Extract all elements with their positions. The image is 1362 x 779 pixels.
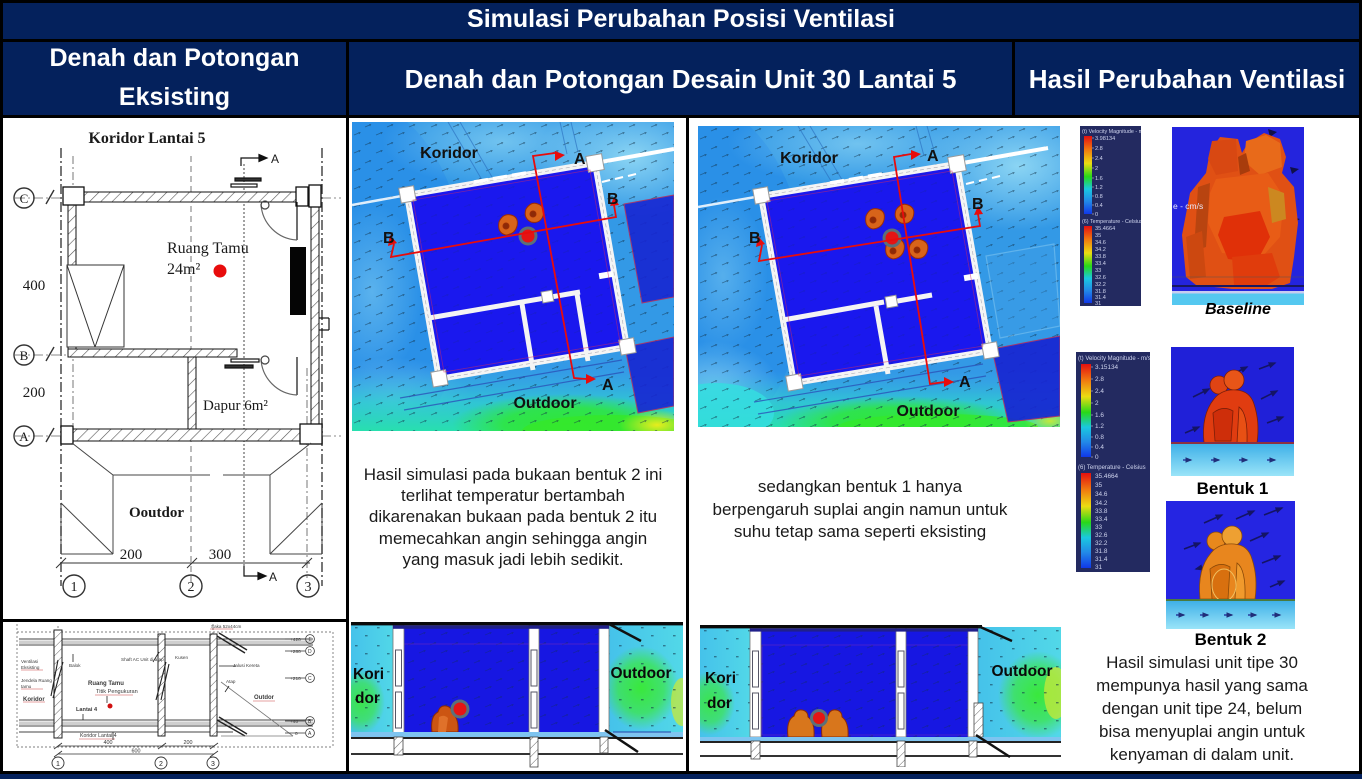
svg-text:Dapur 6m²: Dapur 6m² bbox=[203, 398, 268, 414]
svg-text:+40: +40 bbox=[290, 719, 298, 725]
svg-text:33.8: 33.8 bbox=[1095, 508, 1108, 515]
svg-text:35: 35 bbox=[1095, 482, 1103, 489]
svg-text:Koridor: Koridor bbox=[420, 145, 478, 162]
svg-text:B: B bbox=[383, 230, 395, 247]
svg-text:2: 2 bbox=[159, 761, 163, 768]
svg-text:200: 200 bbox=[23, 385, 46, 401]
svg-text:(6) Temperature - Celsius: (6) Temperature - Celsius bbox=[1078, 465, 1146, 471]
svg-text:0: 0 bbox=[295, 731, 298, 737]
svg-text:2.8: 2.8 bbox=[1095, 376, 1104, 383]
svg-text:400: 400 bbox=[23, 278, 46, 294]
svg-text:31.4: 31.4 bbox=[1095, 556, 1108, 563]
svg-text:A: A bbox=[927, 148, 939, 165]
svg-text:Kori: Kori bbox=[705, 670, 736, 687]
svg-text:B: B bbox=[749, 230, 761, 247]
svg-text:B: B bbox=[972, 196, 984, 213]
svg-text:Lantai 4: Lantai 4 bbox=[76, 707, 98, 713]
svg-text:33.8: 33.8 bbox=[1095, 254, 1106, 260]
svg-text:31.8: 31.8 bbox=[1095, 548, 1108, 555]
svg-text:A: A bbox=[271, 152, 279, 166]
svg-text:2.8: 2.8 bbox=[1095, 146, 1103, 152]
svg-text:tamu: tamu bbox=[21, 684, 32, 689]
svg-text:34.6: 34.6 bbox=[1095, 491, 1108, 498]
svg-text:1.6: 1.6 bbox=[1095, 412, 1104, 419]
svg-text:dor: dor bbox=[707, 695, 732, 712]
svg-text:Ruang Tamu: Ruang Tamu bbox=[167, 240, 249, 257]
svg-text:0.8: 0.8 bbox=[1095, 434, 1104, 441]
svg-text:Ruang Tamu: Ruang Tamu bbox=[88, 681, 124, 687]
svg-text:35.4664: 35.4664 bbox=[1095, 473, 1119, 480]
svg-text:34.2: 34.2 bbox=[1095, 500, 1108, 507]
svg-text:Kori: Kori bbox=[353, 666, 384, 683]
svg-text:dor: dor bbox=[355, 690, 380, 707]
svg-text:Titik Pengukuran: Titik Pengukuran bbox=[96, 689, 138, 695]
svg-text:32.2: 32.2 bbox=[1095, 540, 1108, 547]
svg-text:32.6: 32.6 bbox=[1095, 275, 1106, 281]
svg-text:Shaft AC Unit di atap: Shaft AC Unit di atap bbox=[121, 657, 164, 662]
svg-text:Koridor: Koridor bbox=[780, 150, 838, 167]
svg-text:3: 3 bbox=[305, 580, 312, 595]
svg-text:e - cm/s: e - cm/s bbox=[1173, 201, 1203, 211]
svg-text:Koridor Lantai 4: Koridor Lantai 4 bbox=[80, 733, 117, 739]
svg-text:33.4: 33.4 bbox=[1095, 516, 1108, 523]
svg-text:32.6: 32.6 bbox=[1095, 532, 1108, 539]
svg-text:Ooutdor: Ooutdor bbox=[129, 505, 184, 521]
svg-text:2.4: 2.4 bbox=[1095, 388, 1104, 395]
svg-text:3.15134: 3.15134 bbox=[1095, 364, 1119, 371]
svg-text:0.4: 0.4 bbox=[1095, 444, 1104, 451]
svg-text:0.8: 0.8 bbox=[1095, 194, 1103, 200]
svg-text:2: 2 bbox=[1095, 400, 1099, 407]
svg-text:B: B bbox=[607, 191, 619, 208]
svg-text:(t) Velocity Magnitude - m/s: (t) Velocity Magnitude - m/s bbox=[1082, 129, 1141, 135]
svg-text:2.4: 2.4 bbox=[1095, 156, 1103, 162]
svg-text:35.4664: 35.4664 bbox=[1095, 226, 1115, 232]
svg-text:C: C bbox=[20, 191, 29, 206]
svg-text:Eksisting: Eksisting bbox=[21, 665, 40, 670]
svg-text:+210: +210 bbox=[290, 676, 301, 682]
svg-text:34.6: 34.6 bbox=[1095, 240, 1106, 246]
svg-text:33: 33 bbox=[1095, 268, 1101, 274]
svg-text:Koridor Lantai 5: Koridor Lantai 5 bbox=[88, 130, 205, 147]
svg-text:0.4: 0.4 bbox=[1095, 203, 1103, 209]
svg-text:Outdoor: Outdoor bbox=[610, 665, 671, 682]
svg-text:32.2: 32.2 bbox=[1095, 282, 1106, 288]
svg-text:Balok: Balok bbox=[69, 663, 81, 668]
svg-text:34.2: 34.2 bbox=[1095, 247, 1106, 253]
svg-text:35: 35 bbox=[1095, 233, 1101, 239]
svg-text:33.4: 33.4 bbox=[1095, 261, 1106, 267]
svg-text:A: A bbox=[269, 570, 277, 584]
svg-text:200: 200 bbox=[120, 547, 143, 563]
svg-text:24m²: 24m² bbox=[167, 261, 200, 278]
svg-text:Saka 52x44cm: Saka 52x44cm bbox=[211, 624, 242, 629]
svg-text:Outdoor: Outdoor bbox=[513, 395, 576, 412]
svg-text:C: C bbox=[308, 676, 312, 682]
svg-text:Outdor: Outdor bbox=[254, 695, 275, 701]
svg-text:Outdoor: Outdoor bbox=[896, 403, 959, 420]
svg-text:A: A bbox=[19, 429, 29, 444]
svg-text:1: 1 bbox=[71, 580, 78, 595]
svg-text:Jendela Ruang: Jendela Ruang bbox=[21, 678, 52, 683]
svg-text:D: D bbox=[308, 649, 312, 655]
svg-text:3: 3 bbox=[211, 761, 215, 768]
svg-text:600: 600 bbox=[132, 749, 141, 755]
svg-text:31: 31 bbox=[1095, 564, 1103, 571]
svg-text:2: 2 bbox=[188, 580, 195, 595]
svg-text:+280: +280 bbox=[290, 649, 301, 655]
svg-text:1.2: 1.2 bbox=[1095, 423, 1104, 430]
svg-text:A: A bbox=[574, 151, 586, 168]
svg-text:Ventilasi: Ventilasi bbox=[21, 659, 38, 664]
svg-text:+420: +420 bbox=[290, 637, 301, 643]
svg-text:0: 0 bbox=[1095, 212, 1098, 218]
svg-text:0: 0 bbox=[1095, 454, 1099, 461]
svg-text:2: 2 bbox=[1095, 166, 1098, 172]
svg-text:31: 31 bbox=[1095, 301, 1101, 306]
svg-text:A: A bbox=[959, 374, 971, 391]
svg-text:400: 400 bbox=[104, 740, 113, 746]
svg-text:(6) Temperature - Celsius: (6) Temperature - Celsius bbox=[1082, 219, 1141, 225]
svg-text:33: 33 bbox=[1095, 524, 1103, 531]
svg-text:3.98134: 3.98134 bbox=[1095, 136, 1115, 142]
svg-text:1.6: 1.6 bbox=[1095, 176, 1103, 182]
svg-text:1: 1 bbox=[56, 761, 60, 768]
svg-text:B: B bbox=[20, 348, 29, 363]
svg-text:1.2: 1.2 bbox=[1095, 185, 1103, 191]
svg-text:(t) Velocity Magnitude - m/s: (t) Velocity Magnitude - m/s bbox=[1078, 356, 1150, 362]
svg-text:A: A bbox=[308, 731, 312, 737]
svg-text:A: A bbox=[602, 377, 614, 394]
svg-text:Jalusi Kereta: Jalusi Kereta bbox=[233, 663, 260, 668]
svg-text:300: 300 bbox=[209, 547, 232, 563]
svg-text:Atap: Atap bbox=[226, 679, 236, 684]
svg-text:Kusen: Kusen bbox=[175, 655, 188, 660]
svg-text:200: 200 bbox=[184, 740, 193, 746]
svg-text:Outdoor: Outdoor bbox=[991, 663, 1052, 680]
